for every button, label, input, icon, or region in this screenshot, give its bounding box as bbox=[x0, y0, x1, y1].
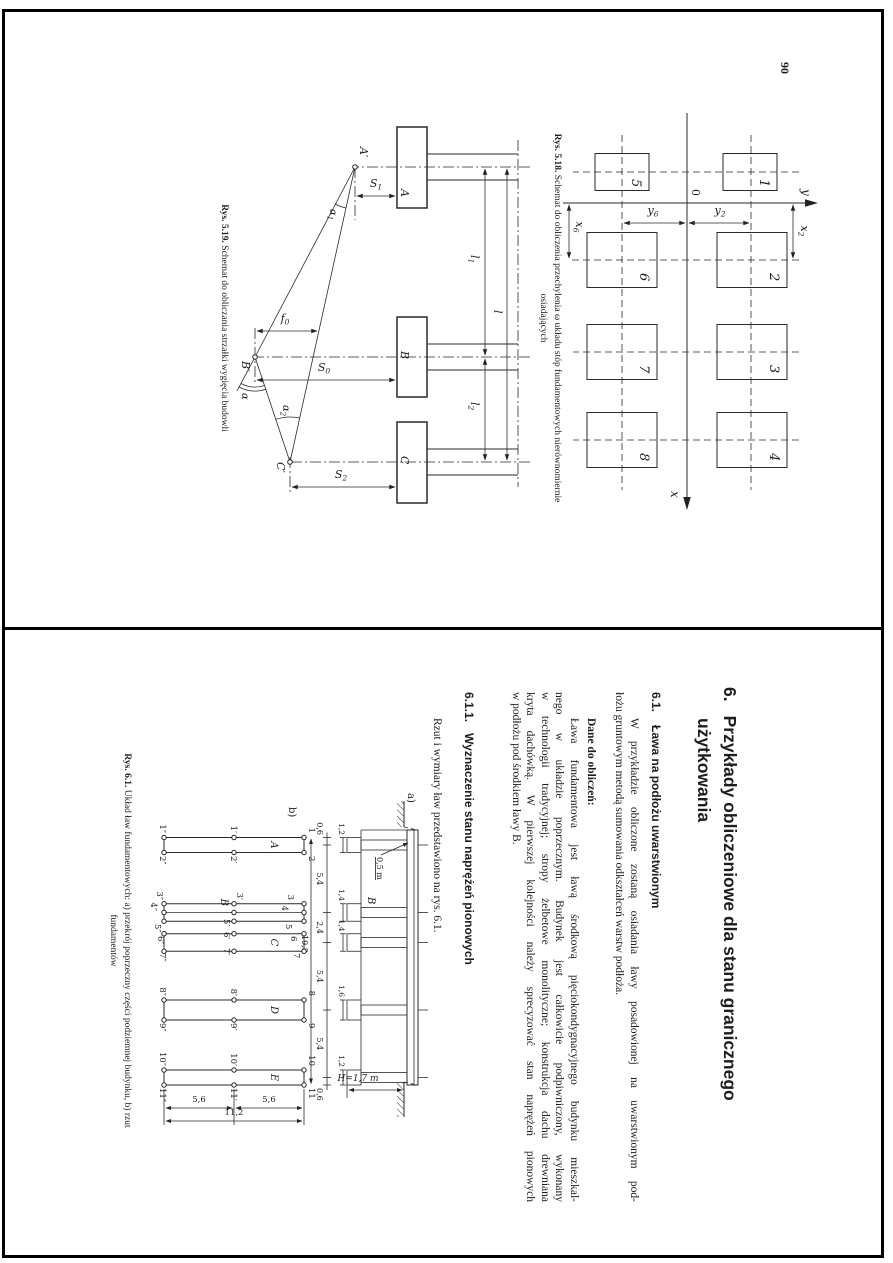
settlement-point-A bbox=[353, 165, 358, 170]
strips bbox=[164, 838, 304, 1086]
axis-dim: 5,4 bbox=[315, 872, 324, 885]
svg-text:2: 2 bbox=[306, 856, 316, 861]
dim-f0-label: f0 bbox=[280, 312, 290, 327]
svg-text:2′: 2′ bbox=[228, 856, 238, 863]
axis-dim: 2,4 bbox=[315, 921, 324, 934]
footing-number: 6 bbox=[636, 273, 651, 281]
caption-5-19-prefix: Rys. 5.19. bbox=[219, 204, 229, 243]
svg-text:4″: 4″ bbox=[148, 902, 158, 911]
footing-number: 5 bbox=[628, 179, 643, 187]
dim-y2-label: y2 bbox=[714, 204, 726, 219]
svg-text:10″: 10″ bbox=[157, 1052, 167, 1066]
width-dim: 1,4 bbox=[337, 920, 346, 932]
axis-dim: 5,4 bbox=[315, 1037, 324, 1050]
svg-text:D: D bbox=[268, 1005, 279, 1014]
footing-number: 2 bbox=[766, 272, 781, 281]
span-dimensions: l l1 l2 bbox=[467, 169, 508, 460]
svg-text:10: 10 bbox=[306, 1055, 316, 1066]
settlement-point-B bbox=[253, 355, 258, 360]
point-numbers-mid: 1′ 2′ 3′ 5′ 6′ 7′ 8′ 9′ 10′ 11′ bbox=[221, 826, 244, 1101]
svg-text:11″: 11″ bbox=[157, 1088, 167, 1102]
dim-S2-label: S2 bbox=[335, 468, 348, 483]
fig-6-1a-cross-section: a) bbox=[300, 793, 428, 1117]
svg-text:7″: 7″ bbox=[157, 953, 167, 962]
axis-dim: 0,6 bbox=[315, 1088, 324, 1101]
scanned-book-spread: { "page_left": { "page_number": "90", "f… bbox=[0, 0, 893, 1263]
section-heading-6-1: 6.1.Ława na podłożu uwarstwionym bbox=[649, 692, 663, 908]
y-axis-arrow bbox=[805, 199, 818, 207]
dim-S1-label: S1 bbox=[370, 177, 382, 192]
axes: y x 0 bbox=[563, 113, 818, 510]
footing-label-A: A bbox=[398, 188, 411, 197]
text-line: Ława fundamentowa jest ławą środkową pię… bbox=[567, 692, 582, 1202]
dim-l-label: l bbox=[491, 310, 504, 314]
page-90: 90 y x 0 bbox=[5, 10, 884, 626]
settlement-point-C bbox=[288, 460, 293, 465]
axis-stubs bbox=[418, 845, 428, 1078]
page-number: 90 bbox=[777, 62, 792, 74]
dim-0-5m-label: 0,5 m bbox=[375, 857, 384, 880]
len-dim: 5,6 bbox=[262, 1095, 276, 1105]
dim-x6-label: x6 bbox=[572, 222, 587, 233]
ground-hatch-left bbox=[397, 801, 404, 827]
text-line: nego w układzie poprzecznym. Budynek jes… bbox=[552, 692, 567, 1202]
fig-6-1b-plan: b) A B C D E 1 bbox=[148, 807, 316, 1125]
dim-l1-label: l1 bbox=[467, 255, 482, 263]
width-dim: 1,2 bbox=[337, 1055, 346, 1067]
svg-text:6′: 6′ bbox=[221, 932, 231, 939]
footing-number: 7 bbox=[636, 365, 651, 374]
strip-D bbox=[164, 1000, 304, 1020]
text-line: łożu gruntowym metodą sumowania odkształ… bbox=[612, 692, 627, 1202]
point-label-A: A′ bbox=[357, 146, 370, 158]
section-heading-6-1-1: 6.1.1.Wyznaczenie stanu naprężeń pionowy… bbox=[462, 692, 476, 965]
caption-6-1-line2: fundamentów bbox=[106, 688, 120, 1193]
svg-text:4: 4 bbox=[279, 906, 289, 911]
figure-6-1: a) bbox=[130, 785, 430, 1135]
svg-text:11′: 11′ bbox=[228, 1088, 238, 1101]
text-line: w podłożu pod środkiem ławy B. bbox=[509, 692, 524, 1202]
svg-text:6″: 6″ bbox=[155, 936, 165, 945]
svg-text:8″: 8″ bbox=[157, 987, 167, 996]
svg-text:1′: 1′ bbox=[228, 826, 238, 833]
settlement-dimensions: S1 S0 S2 f0 bbox=[257, 177, 395, 487]
caption-5-19: Rys. 5.19. Schemat do obliczania strzałk… bbox=[217, 73, 231, 563]
width-dim: 1,6 bbox=[337, 985, 346, 997]
caption-5-18-prefix: Rys. 5.18. bbox=[552, 134, 562, 173]
dim-l2-label: l2 bbox=[467, 402, 482, 411]
axis-dim: 0,6 bbox=[315, 822, 324, 835]
figure-5-18-footing-grid: y x 0 1 2 3 4 5 6 7 8 y2 y6 bbox=[539, 105, 821, 520]
angle-marks: α1 α2 α bbox=[239, 204, 346, 419]
svg-text:8′: 8′ bbox=[228, 989, 238, 996]
page-91-region: 6.Przykłady obliczeniowe dla stanu grani… bbox=[5, 630, 884, 1253]
point-numbers-top: 1 2 3 4 5 6 7 8 9 10 11 bbox=[279, 828, 316, 1099]
svg-text:1: 1 bbox=[306, 828, 316, 833]
svg-text:9′: 9′ bbox=[228, 1023, 238, 1030]
width-dim: 1,2 bbox=[337, 823, 346, 835]
axis-dim: 5,4 bbox=[315, 970, 324, 983]
calculation-points bbox=[162, 835, 306, 1087]
svg-text:A: A bbox=[268, 840, 279, 848]
angle-alpha1-label: α1 bbox=[326, 209, 339, 220]
svg-text:8: 8 bbox=[306, 991, 316, 996]
angle-alpha2-label: α2 bbox=[279, 405, 292, 417]
ceiling-slab bbox=[407, 830, 418, 1085]
columns-and-footings: A B C bbox=[397, 127, 518, 503]
point-numbers-bottom: 1″ 2″ 3″ 4″ 5″ 6″ 7″ 8″ 9″ 10″ 11″ bbox=[148, 824, 167, 1102]
footing-number: 3 bbox=[766, 365, 781, 373]
x-axis-label: x bbox=[668, 491, 682, 498]
len-dim: 5,6 bbox=[192, 1095, 206, 1105]
chapter-heading: 6.Przykłady obliczeniowe dla stanu grani… bbox=[691, 687, 743, 1101]
svg-text:5: 5 bbox=[283, 924, 293, 929]
ground-hatch-right bbox=[397, 1082, 404, 1117]
footing-label-C: C bbox=[398, 456, 411, 465]
svg-text:6: 6 bbox=[288, 936, 298, 941]
svg-text:3′: 3′ bbox=[234, 893, 244, 900]
svg-text:1″: 1″ bbox=[157, 824, 167, 833]
svg-text:7: 7 bbox=[291, 953, 301, 958]
figure-5-19-deflection: A B C l l1 l2 A′ B′ C′ bbox=[224, 105, 546, 520]
svg-text:10′: 10′ bbox=[228, 1053, 238, 1066]
basement-walls bbox=[361, 840, 407, 1083]
text-line: kryta dachówką. W pierwszej kolejności n… bbox=[523, 692, 538, 1202]
half-meter-annotation: 0,5 m bbox=[375, 843, 408, 880]
svg-text:2″: 2″ bbox=[157, 856, 167, 865]
svg-text:3″: 3″ bbox=[154, 891, 164, 900]
dim-S0-label: S0 bbox=[318, 361, 331, 376]
svg-text:C: C bbox=[268, 939, 279, 947]
page-91: 6.Przykłady obliczeniowe dla stanu grani… bbox=[5, 630, 884, 1253]
footing-number: 8 bbox=[636, 453, 651, 461]
point-label-C: C′ bbox=[274, 462, 287, 473]
H-depth-dimension: H=1,7 m bbox=[336, 1074, 402, 1098]
point-label-B: B′ bbox=[239, 360, 252, 372]
footing-width-dimensions: 1,2 1,4 1,4 1,6 1,2 bbox=[337, 823, 346, 1085]
footing-label-B: B bbox=[398, 350, 411, 359]
caption-6-1-line1: Rys. 6.1. Układ ław fundamentowych: a) p… bbox=[120, 688, 134, 1193]
len-total-dim: 11,2 bbox=[225, 1108, 244, 1118]
svg-text:9″: 9″ bbox=[157, 1023, 167, 1032]
angle-alpha-label: α bbox=[239, 393, 250, 400]
intro-paragraph: W przykładzie obliczone zostaną osiadani… bbox=[612, 692, 641, 1202]
dane-heading: Dane do obliczeń: bbox=[585, 718, 597, 806]
deflection-lines: A′ B′ C′ bbox=[237, 146, 370, 494]
strip-letters: A B C D E bbox=[218, 840, 279, 1081]
caption-5-18-line1: Rys. 5.18. Schemat do obliczenia przechy… bbox=[550, 73, 564, 563]
y-axis-label: y bbox=[799, 188, 813, 196]
chapter-number: 6. bbox=[720, 687, 740, 702]
part-a-label: a) bbox=[405, 793, 416, 803]
row-column-centerlines bbox=[569, 135, 799, 490]
width-dim: 1,4 bbox=[337, 889, 346, 901]
svg-text:3: 3 bbox=[285, 895, 295, 900]
origin-label: 0 bbox=[689, 189, 702, 196]
caption-6-1: Rys. 6.1. Układ ław fundamentowych: a) p… bbox=[106, 688, 134, 1193]
footing-number: 1 bbox=[756, 179, 771, 187]
dimensions: y2 y6 x2 x6 bbox=[569, 204, 811, 258]
dim-x2-label: x2 bbox=[797, 226, 812, 237]
part-b-label: b) bbox=[286, 807, 297, 817]
dim-y6-label: y6 bbox=[647, 204, 659, 219]
rzut-sentence: Rzut i wymiary ław przedstawiono na rys.… bbox=[431, 718, 443, 933]
dane-paragraph: Ława fundamentowa jest ławą środkową pię… bbox=[509, 692, 582, 1202]
wall-B-label: B bbox=[365, 896, 376, 904]
plan-length-dimensions: 5,6 5,6 11,2 bbox=[164, 1089, 304, 1125]
x-axis-arrow bbox=[683, 497, 691, 510]
svg-text:9: 9 bbox=[306, 1023, 316, 1028]
svg-text:5′: 5′ bbox=[221, 919, 231, 926]
text-line: W przykładzie obliczone zostaną osiadani… bbox=[627, 692, 642, 1202]
text-line: w technologii tradycyjnej; stropy żelbet… bbox=[538, 692, 553, 1202]
svg-text:7′: 7′ bbox=[221, 948, 231, 955]
svg-text:5″: 5″ bbox=[152, 924, 162, 933]
caption-6-1-prefix: Rys. 6.1. bbox=[122, 753, 132, 787]
footing-number: 4 bbox=[766, 452, 781, 461]
svg-text:E: E bbox=[268, 1073, 279, 1082]
svg-text:11: 11 bbox=[306, 1088, 316, 1099]
page-90-region: 90 y x 0 bbox=[5, 10, 884, 626]
svg-text:B: B bbox=[218, 898, 229, 906]
